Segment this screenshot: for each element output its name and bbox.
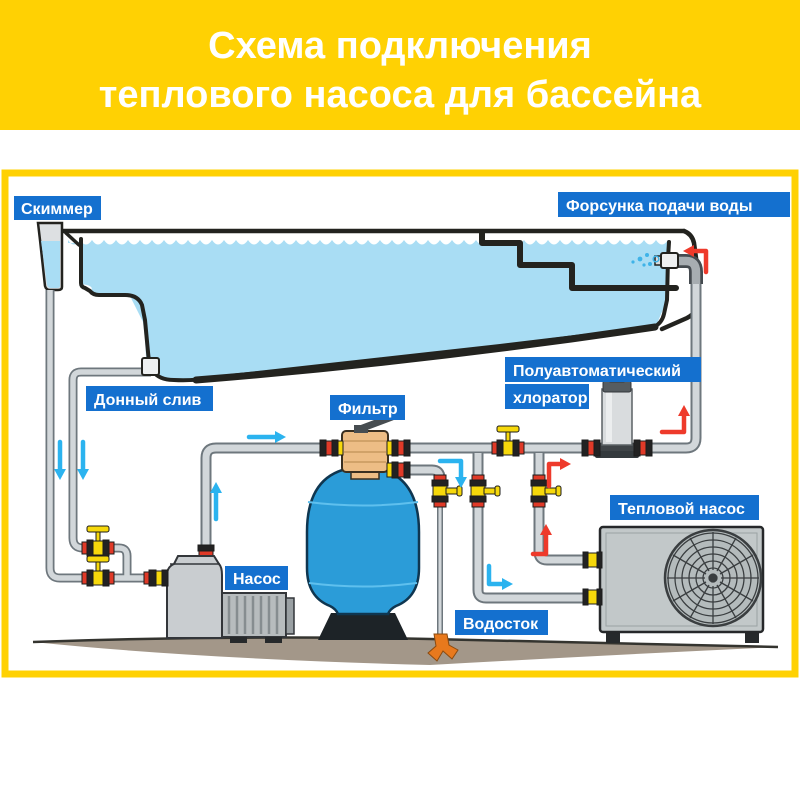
pool-heat-pump-schematic-page: Схема подключения теплового насоса для б…	[0, 0, 800, 801]
bypass-valve	[492, 426, 524, 456]
filter-tank-base	[318, 613, 408, 640]
label-filter: Фильтр	[330, 395, 405, 420]
label-inlet-nozzle: Форсунка подачи воды	[558, 192, 790, 217]
chlorinator-left-union	[582, 440, 600, 456]
label-pump-text: Насос	[233, 571, 281, 588]
pump-motor	[222, 593, 294, 643]
heat-pump-outlet-union	[583, 552, 602, 568]
page-title-line1: Схема подключения	[208, 25, 592, 67]
filter-right-union	[387, 440, 410, 456]
label-bottom-drain: Донный слив	[86, 386, 213, 411]
filter-left-union	[320, 440, 343, 456]
heat-pump	[600, 527, 763, 643]
pump-housing	[167, 556, 222, 638]
label-skimmer-text: Скиммер	[21, 201, 93, 218]
heat-pump-inlet-union	[583, 589, 602, 605]
title-banner: Схема подключения теплового насоса для б…	[0, 0, 800, 130]
page-title-line2: теплового насоса для бассейна	[99, 74, 702, 116]
skimmer-line-valve	[82, 556, 114, 586]
filter-waste-union	[387, 462, 410, 478]
chlorinator-right-union	[634, 440, 652, 456]
label-chlorinator-text-line2: хлоратор	[513, 390, 588, 407]
bottom-drain-valve	[82, 526, 114, 556]
pool-heat-pump-diagram: Схема подключения теплового насоса для б…	[0, 0, 800, 801]
heat-pump-fan	[665, 530, 761, 626]
bottom-drain-fitting	[142, 358, 159, 375]
label-filter-text: Фильтр	[338, 401, 398, 418]
label-inlet-nozzle-text: Форсунка подачи воды	[566, 198, 752, 215]
label-heat-pump-text: Тепловой насос	[618, 501, 745, 518]
label-drain-text: Водосток	[463, 616, 539, 633]
label-drain: Водосток	[455, 610, 548, 635]
label-bottom-drain-text: Донный слив	[94, 392, 202, 409]
label-chlorinator-text-line1: Полуавтоматический	[513, 363, 681, 380]
label-skimmer: Скиммер	[14, 196, 101, 220]
label-heat-pump: Тепловой насос	[610, 495, 759, 520]
pump-outlet-union	[198, 545, 214, 551]
label-pump: Насос	[225, 566, 288, 590]
pump-inlet-union	[144, 570, 168, 586]
